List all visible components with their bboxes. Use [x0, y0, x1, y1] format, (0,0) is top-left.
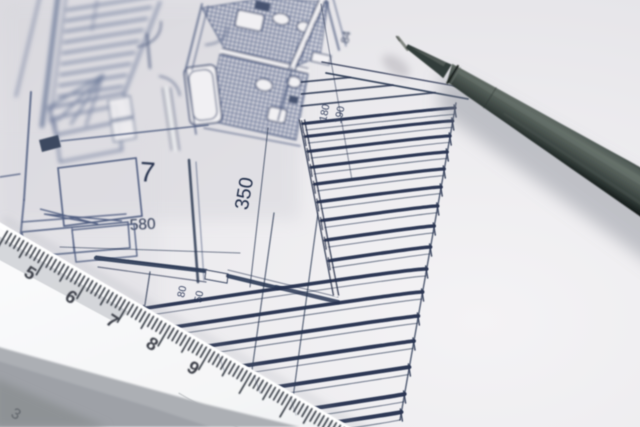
svg-text:580: 580	[129, 216, 156, 234]
svg-text:7: 7	[139, 156, 157, 188]
